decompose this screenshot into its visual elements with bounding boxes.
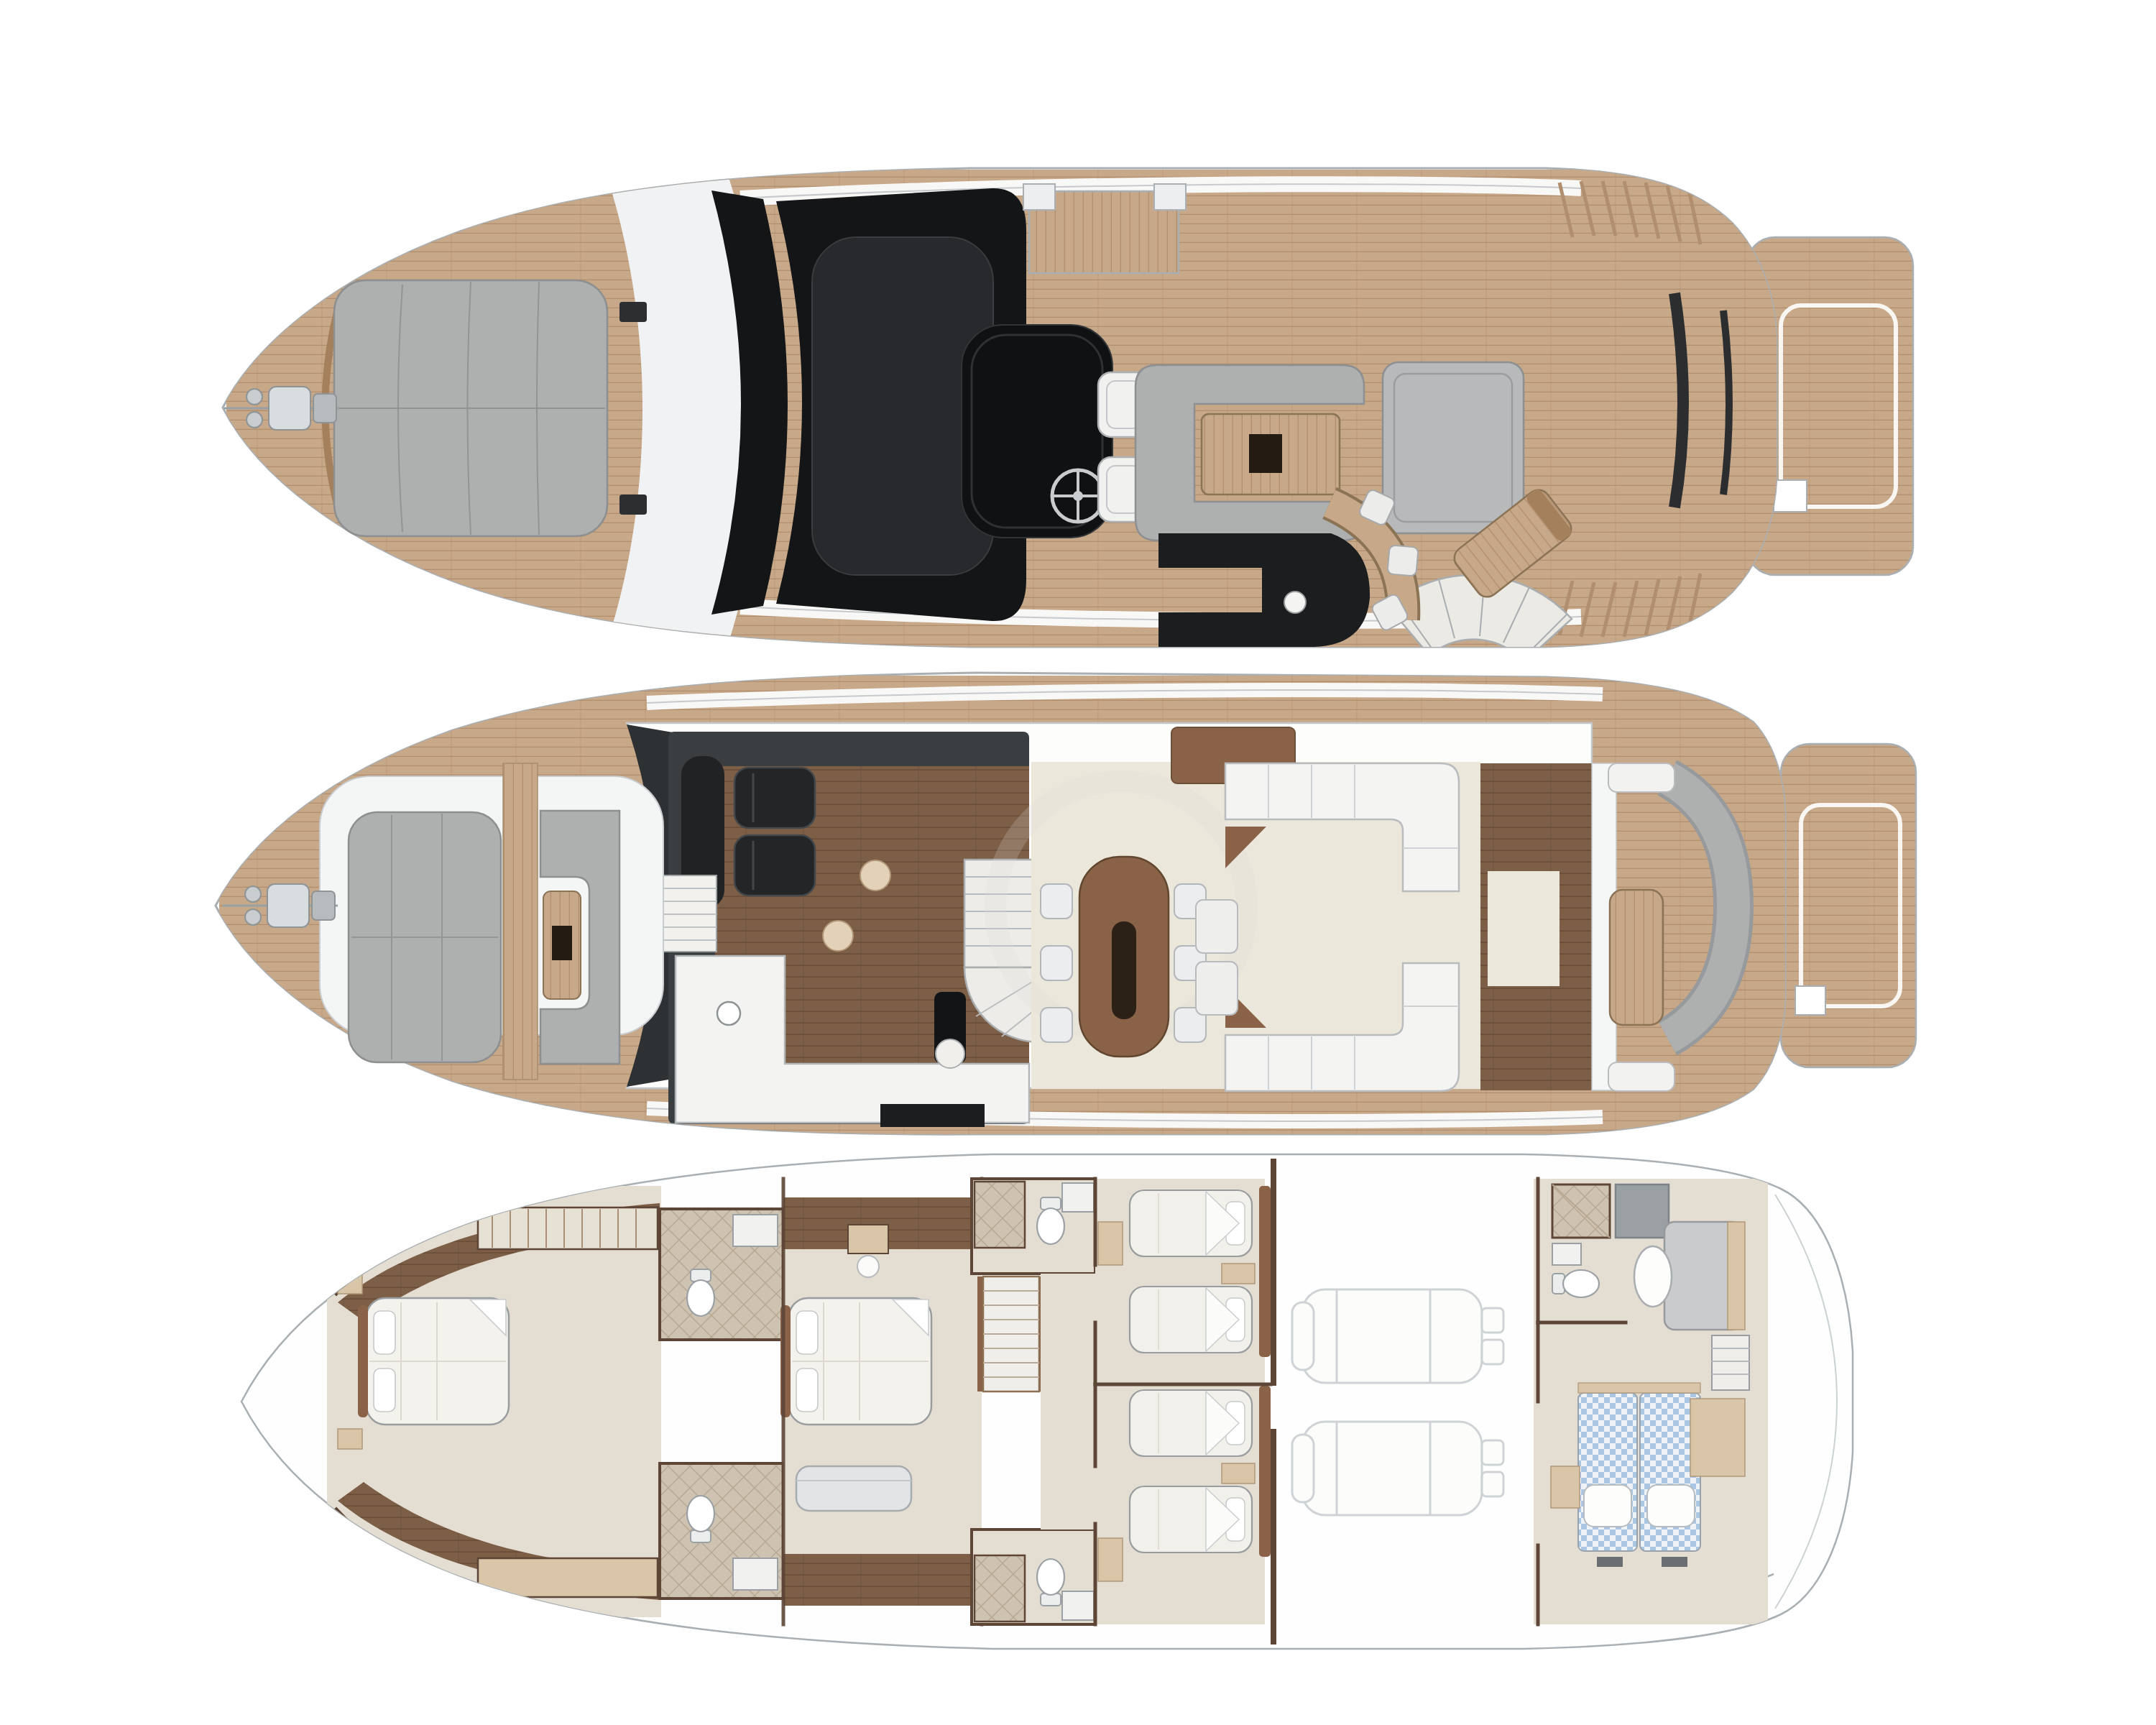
ld-vanity-desk — [848, 1225, 888, 1253]
ld-crew-stairs — [1712, 1335, 1749, 1390]
md-stairwell — [934, 992, 966, 1068]
lower-deck — [241, 1154, 1853, 1649]
ld-central-stairs — [977, 1276, 1045, 1391]
md-swim-platform — [1781, 744, 1916, 1067]
ld-master-sofa — [796, 1466, 911, 1511]
ld-nightstand — [338, 1429, 362, 1449]
ld-crew-toilet — [1552, 1270, 1599, 1297]
ld-nightstand — [1222, 1463, 1255, 1483]
fb-deck-hatch — [619, 302, 647, 322]
steering-wheel-icon — [1052, 470, 1104, 522]
fb-bow-sunpad — [326, 280, 648, 536]
ld-crew-table — [1634, 1246, 1672, 1307]
ld-crew-cabinet — [1690, 1399, 1745, 1476]
ld-bow-seat — [313, 1541, 395, 1599]
fb-deck-hatch — [619, 494, 647, 515]
ld-nightstand — [1551, 1466, 1580, 1508]
ld-nightstand — [1222, 1264, 1255, 1284]
md-aft-lounge-rug — [1488, 871, 1560, 986]
deck-plan-canvas — [0, 0, 2156, 1725]
fb-settee-table — [1202, 414, 1340, 494]
md-dining-table — [1079, 857, 1169, 1057]
ld-single-bed — [1130, 1287, 1252, 1353]
fb-platform-hatch — [1774, 480, 1807, 512]
ld-single-bed — [1130, 1190, 1252, 1256]
fb-helm-console — [962, 325, 1112, 538]
flybridge-deck — [223, 168, 1913, 662]
main-deck — [216, 673, 1916, 1137]
ld-guest-bathroom-fwd — [972, 1179, 1095, 1274]
fb-bar-sink — [1284, 592, 1306, 613]
md-cockpit-seat — [1608, 1062, 1674, 1091]
ld-vip-bed — [358, 1298, 509, 1425]
ld-vip-cabin — [313, 1186, 661, 1617]
fb-bar-module — [1383, 362, 1524, 533]
ld-bow-seat — [313, 1205, 395, 1263]
ld-crew-cabin — [1534, 1179, 1768, 1624]
fb-radar-arch — [1023, 184, 1186, 273]
md-bow-lounge — [320, 763, 663, 1080]
ld-headboard — [1259, 1386, 1271, 1557]
ld-master-bed — [780, 1298, 931, 1425]
yacht-deck-plans — [0, 0, 2156, 1725]
ld-vip-wardrobe — [478, 1207, 658, 1249]
md-cockpit-seat — [1608, 763, 1674, 792]
md-cockpit-table — [1610, 890, 1663, 1025]
md-galley-sink — [717, 1002, 740, 1025]
ld-single-bed — [1130, 1486, 1252, 1552]
ld-single-bed — [1130, 1390, 1252, 1456]
ld-guest-bathroom-aft — [972, 1529, 1095, 1624]
md-bow-console — [503, 763, 538, 1080]
ld-twin-cabins — [1095, 1179, 1271, 1624]
md-ottoman — [1196, 900, 1238, 953]
ld-desk-stool — [857, 1256, 879, 1277]
md-ottoman — [1196, 962, 1238, 1015]
md-companionway-stairs — [658, 875, 717, 952]
ld-master-cabin — [780, 1197, 982, 1606]
md-galley-window — [880, 1104, 985, 1127]
ld-crew-bunks — [1578, 1383, 1700, 1567]
ld-crew-locker — [1616, 1184, 1669, 1238]
ld-headboard — [1259, 1186, 1271, 1357]
